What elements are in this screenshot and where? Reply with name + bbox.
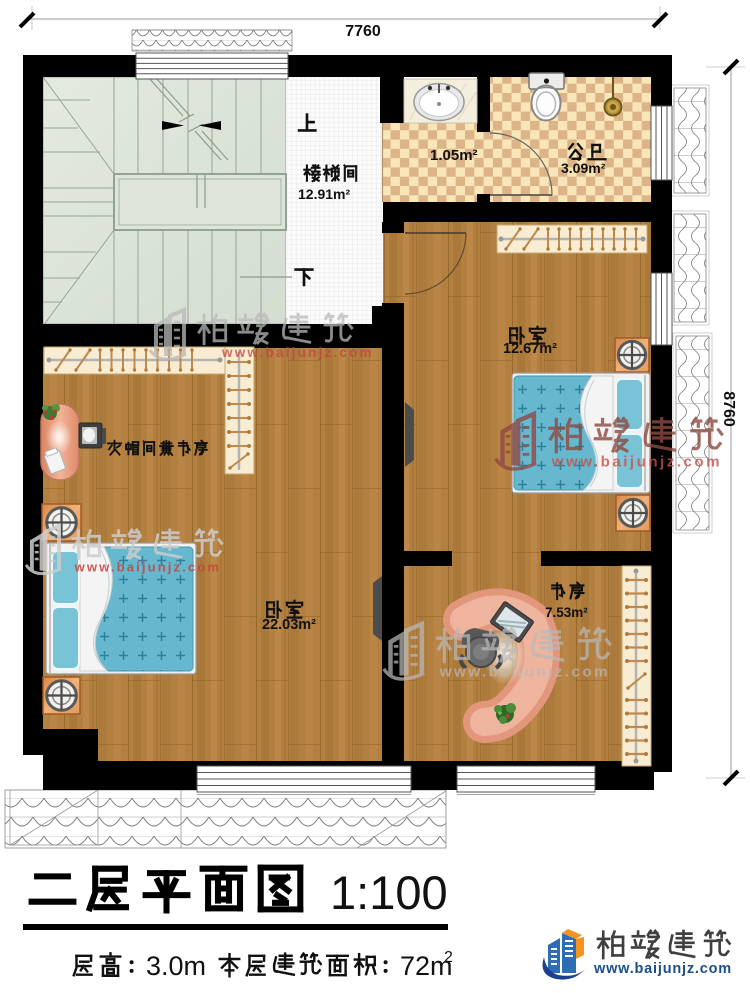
svg-text:1.05m²: 1.05m²	[430, 147, 478, 164]
svg-text:12.67m²: 12.67m²	[503, 341, 557, 357]
svg-text:1:100: 1:100	[330, 866, 448, 919]
svg-text:8760: 8760	[720, 391, 737, 427]
svg-text:www.baijunjz.com: www.baijunjz.com	[593, 961, 732, 977]
svg-text:www.baijunjz.com: www.baijunjz.com	[551, 454, 722, 471]
svg-text:3.0m: 3.0m	[146, 951, 206, 981]
svg-text:www.baijunjz.com: www.baijunjz.com	[74, 560, 222, 575]
svg-text:7.53m²: 7.53m²	[545, 605, 588, 620]
svg-text:www.baijunjz.com: www.baijunjz.com	[439, 664, 610, 681]
svg-text:12.91m²: 12.91m²	[298, 186, 350, 202]
svg-text:22.03m²: 22.03m²	[262, 617, 316, 633]
svg-text:www.baijunjz.com: www.baijunjz.com	[221, 345, 374, 360]
svg-text:3.09m²: 3.09m²	[561, 160, 606, 176]
svg-text:2: 2	[444, 949, 453, 966]
svg-text:7760: 7760	[345, 23, 381, 40]
